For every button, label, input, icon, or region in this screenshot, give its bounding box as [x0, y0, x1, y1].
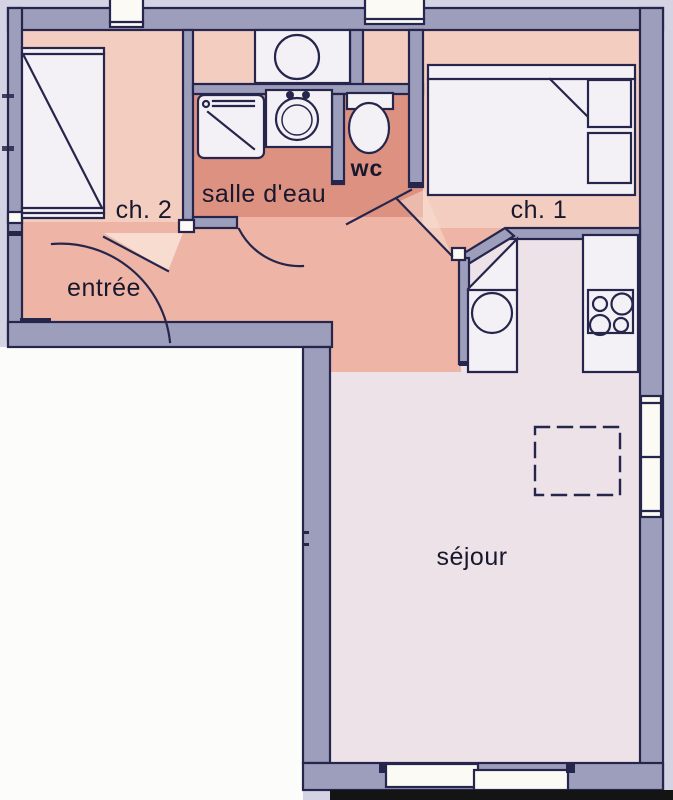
wall-tick	[2, 94, 14, 98]
bed-ch1	[428, 65, 635, 195]
floor-plan-page: ch. 2 salle d'eau wc ch. 1 entrée séjour	[0, 0, 673, 800]
jamb-mark	[8, 231, 22, 236]
wall-top	[8, 8, 663, 30]
wall-tick	[302, 543, 309, 546]
jamb-mark	[20, 318, 51, 323]
top-shaft-2	[365, 0, 424, 24]
door-jamb-sejour	[452, 248, 465, 260]
washbasin	[266, 90, 332, 147]
bed-ch2	[22, 48, 104, 218]
label-sejour: séjour	[436, 543, 507, 571]
wall-tick	[302, 531, 309, 534]
door-jamb-ch2	[179, 220, 194, 232]
laundry-unit	[255, 30, 350, 83]
wall-cap	[409, 182, 423, 188]
sliding-door-jamb	[566, 763, 575, 773]
plan-shadow	[330, 790, 673, 800]
wall-sejour-left	[303, 347, 330, 763]
wall-bath-wc-divider	[332, 94, 344, 184]
sliding-door-panel-left	[386, 764, 478, 787]
wall-niche-divider	[350, 30, 363, 87]
label-ch1: ch. 1	[511, 196, 568, 224]
door-jamb-entrance	[8, 212, 22, 223]
label-salle-deau: salle d'eau	[202, 180, 326, 208]
wall-ch2-right	[183, 30, 193, 220]
wall-bath-bottom-stub	[193, 217, 237, 228]
wall-tick	[2, 146, 14, 151]
label-entree: entrée	[67, 274, 141, 302]
cooktop-counter	[583, 235, 638, 372]
label-wc: wc	[350, 155, 384, 181]
sliding-door-jamb	[379, 763, 386, 773]
wall-left	[8, 8, 22, 340]
label-ch2: ch. 2	[116, 196, 173, 224]
floor-plan-svg: ch. 2 salle d'eau wc ch. 1 entrée séjour	[0, 0, 673, 800]
wall-cap	[332, 180, 344, 185]
wall-wc-ch1	[409, 30, 423, 187]
exterior-area	[0, 347, 303, 800]
shower-tray	[198, 95, 264, 158]
sliding-door-panel-right	[474, 770, 568, 790]
floor-plan: ch. 2 salle d'eau wc ch. 1 entrée séjour	[0, 0, 673, 800]
